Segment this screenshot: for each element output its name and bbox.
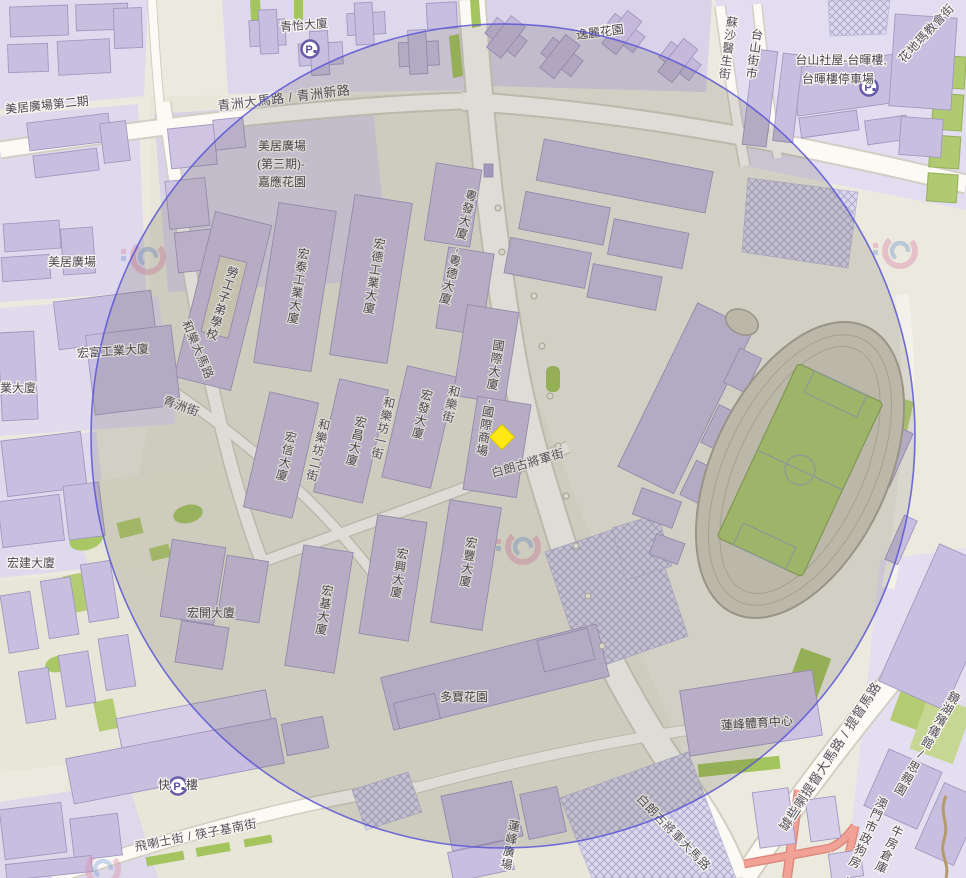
label-taishan-social-2: 台暉樓停車場 <box>802 71 874 86</box>
map-canvas[interactable]: P P P 青怡大廈 逸麗花園 台山社屋-台暉樓, 台暉樓停車場 美居廣場第二期… <box>0 0 966 878</box>
label-taishan-social-1: 台山社屋-台暉樓, <box>795 52 886 67</box>
label-kuai-left: 快 <box>158 778 170 792</box>
label-kuai-right: 樓 <box>186 777 198 792</box>
label-hongjian: 宏建大廈 <box>7 555 55 570</box>
parking-icon: P <box>302 41 319 58</box>
parking-glyph: P <box>305 44 312 56</box>
label-meiju: 美居廣場 <box>48 255 96 269</box>
label-partial-building: 業大廈 <box>0 380 36 395</box>
parking-icon: P <box>170 778 187 795</box>
parking-glyph: P <box>173 781 180 793</box>
